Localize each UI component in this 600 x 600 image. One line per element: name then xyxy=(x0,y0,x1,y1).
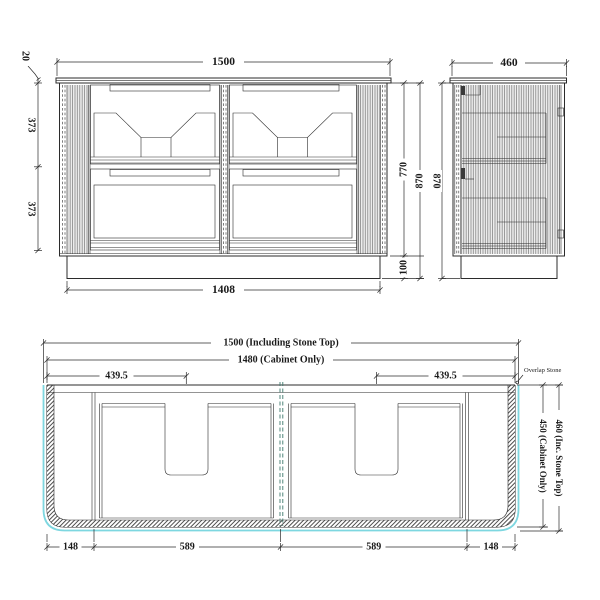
dim-side-height-text: 870 xyxy=(431,174,442,189)
dim-depth-stone-text: 460 (Inc. Stone Top) xyxy=(554,419,564,496)
dim-plan-overall-text: 1500 (Including Stone Top) xyxy=(223,338,338,349)
dim-kick-width-text: 1408 xyxy=(212,284,235,296)
dim-side-depth-text: 460 xyxy=(500,57,518,69)
dim-end-right-text: 148 xyxy=(484,542,499,553)
dim-total-height-text: 870 xyxy=(415,174,426,189)
dim-bay-left-text: 589 xyxy=(180,542,195,553)
front-right-side-panel xyxy=(357,85,385,254)
technical-drawing-vanity: 1500 20 373 373 xyxy=(0,0,600,600)
plan-view xyxy=(44,382,519,531)
dim-stone-thickness-text: 20 xyxy=(20,51,31,61)
dim-end-left-text: 148 xyxy=(63,542,78,553)
dim-basin-left-text: 439.5 xyxy=(105,371,128,382)
dim-upper-drawer-text: 373 xyxy=(26,118,37,133)
drawing-svg: 1500 20 373 373 xyxy=(0,0,600,600)
dim-plan-cabinet-text: 1480 (Cabinet Only) xyxy=(238,355,325,366)
dim-cabinet-height-text: 770 xyxy=(399,162,410,177)
dim-basin-right-text: 439.5 xyxy=(434,371,457,382)
overlap-stone-label: Overlap Stone xyxy=(524,367,561,374)
side-fluted-face xyxy=(461,85,559,254)
dim-depth-cabinet-text: 450 (Cabinet Only) xyxy=(538,419,548,493)
dim-front-width-text: 1500 xyxy=(212,56,235,68)
dim-kick-height-text: 100 xyxy=(399,260,410,275)
dim-bay-right-text: 589 xyxy=(366,542,381,553)
dim-lower-drawer-text: 373 xyxy=(26,202,37,217)
side-elevation-view xyxy=(450,78,567,279)
